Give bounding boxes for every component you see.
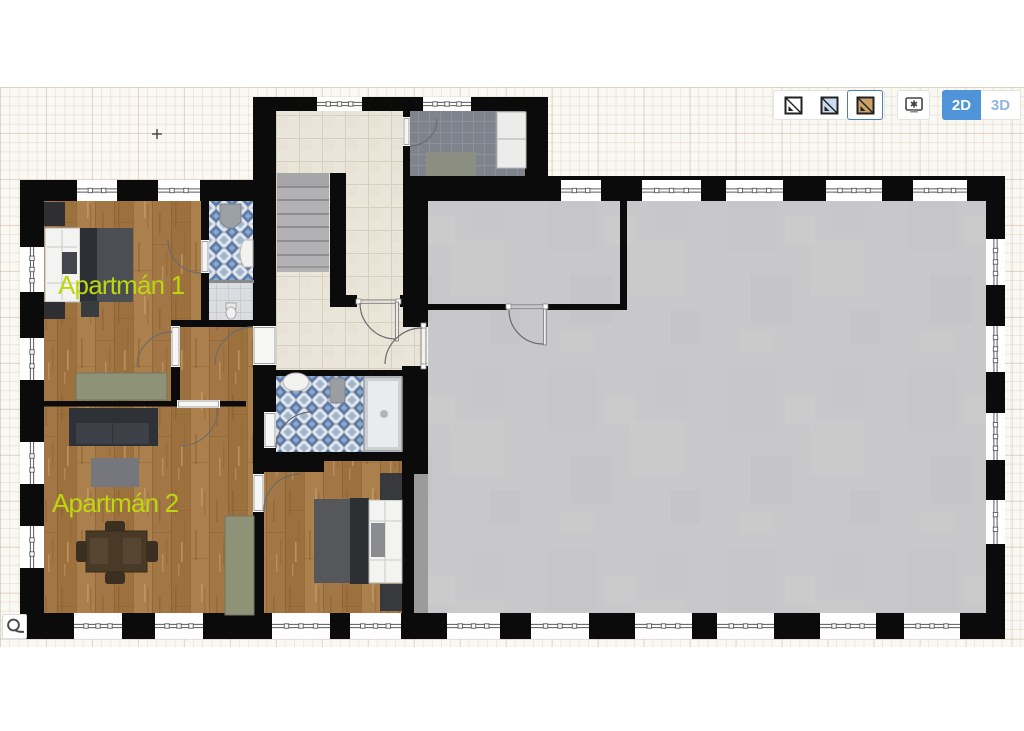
svg-text:Apartmán 2: Apartmán 2 <box>52 488 179 518</box>
svg-text:Apartmán 1: Apartmán 1 <box>58 270 185 300</box>
